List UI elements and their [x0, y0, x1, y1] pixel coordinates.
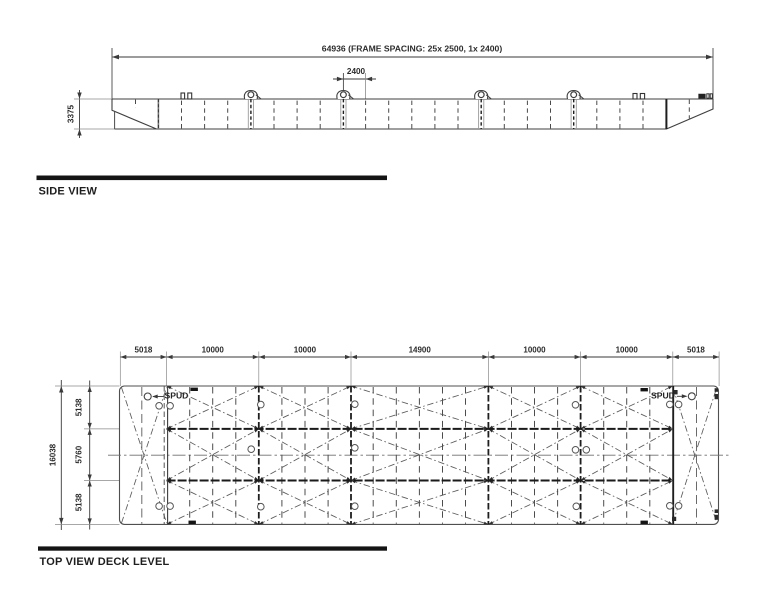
- svg-text:5760: 5760: [75, 445, 84, 463]
- svg-text:10000: 10000: [523, 346, 546, 355]
- svg-text:5018: 5018: [135, 346, 153, 355]
- svg-text:64936 (FRAME SPACING: 25x 2500: 64936 (FRAME SPACING: 25x 2500, 1x 2400): [322, 44, 503, 54]
- svg-text:SPUD: SPUD: [651, 390, 675, 400]
- svg-text:10000: 10000: [616, 346, 639, 355]
- svg-text:5138: 5138: [75, 493, 84, 511]
- svg-text:TOP VIEW DECK LEVEL: TOP VIEW DECK LEVEL: [40, 556, 170, 568]
- svg-text:SPUD: SPUD: [165, 391, 189, 401]
- svg-text:16038: 16038: [49, 443, 58, 466]
- svg-text:SIDE VIEW: SIDE VIEW: [39, 186, 98, 198]
- svg-text:10000: 10000: [202, 346, 225, 355]
- svg-text:10000: 10000: [294, 346, 317, 355]
- svg-text:5138: 5138: [75, 398, 84, 416]
- svg-text:2400: 2400: [347, 67, 366, 76]
- svg-text:5018: 5018: [687, 346, 705, 355]
- svg-text:14900: 14900: [409, 346, 432, 355]
- svg-text:3375: 3375: [67, 104, 76, 123]
